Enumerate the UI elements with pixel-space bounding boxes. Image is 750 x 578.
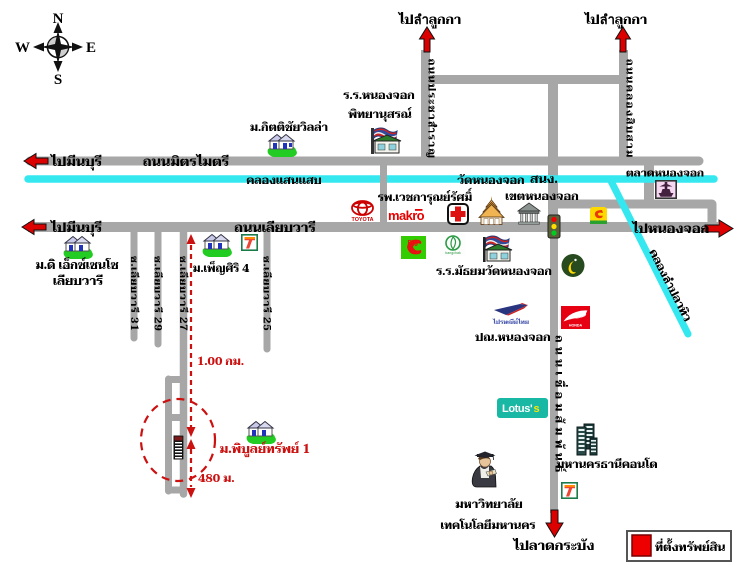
svg-text:E: E — [86, 40, 96, 56]
svg-text:TOYOTA: TOYOTA — [352, 217, 374, 223]
svg-text:ไปรษณีย์ไทย: ไปรษณีย์ไทย — [492, 317, 529, 328]
svg-text:ซ.เลียบวารี 25: ซ.เลียบวารี 25 — [258, 256, 275, 332]
svg-text:ไปหนองจอก: ไปหนองจอก — [631, 218, 710, 241]
svg-text:มหาวิทยาลัย: มหาวิทยาลัย — [455, 495, 523, 515]
svg-text:HONDA: HONDA — [569, 324, 583, 328]
svg-text:ไปมีนบุรี: ไปมีนบุรี — [49, 217, 102, 240]
svg-text:ม.พิบูลย์ทรัพย์ 1: ม.พิบูลย์ทรัพย์ 1 — [220, 438, 311, 460]
svg-text:Big: Big — [408, 240, 419, 247]
svg-text:เทคโนโลยีมหานคร: เทคโนโลยีมหานคร — [440, 517, 535, 536]
svg-text:คลองแสนแสบ: คลองแสนแสบ — [246, 172, 321, 191]
svg-text:ร.ร.หนองจอก: ร.ร.หนองจอก — [343, 86, 415, 106]
svg-text:ไปลาดกระบัง: ไปลาดกระบัง — [512, 535, 595, 558]
svg-text:ซ.เลียบวารี 31: ซ.เลียบวารี 31 — [125, 256, 142, 332]
svg-text:N: N — [53, 11, 64, 27]
svg-text:s: s — [534, 403, 540, 415]
svg-text:ไปลำลูกกา: ไปลำลูกกา — [397, 9, 461, 31]
svg-text:S: S — [54, 72, 62, 88]
svg-text:ซ.เลียบวารี 29: ซ.เลียบวารี 29 — [149, 256, 166, 332]
svg-text:ซ.เลียบวารี 27: ซ.เลียบวารี 27 — [174, 256, 191, 332]
svg-text:ปณ.หนองจอก: ปณ.หนองจอก — [475, 328, 550, 348]
svg-text:bangchak: bangchak — [445, 251, 461, 255]
svg-text:มหานครธานีคอนโด: มหานครธานีคอนโด — [556, 456, 657, 475]
svg-text:ที่ตั้งทรัพย์สิน: ที่ตั้งทรัพย์สิน — [655, 537, 726, 558]
svg-text:เขตหนองจอก: เขตหนองจอก — [505, 187, 579, 207]
svg-text:Lotus': Lotus' — [502, 403, 533, 415]
svg-text:ไปลำลูกกา: ไปลำลูกกา — [583, 9, 647, 31]
svg-text:ไปมีนบุรี: ไปมีนบุรี — [49, 151, 102, 174]
svg-text:รพ.เวชการุณย์รัศมิ์: รพ.เวชการุณย์รัศมิ์ — [378, 186, 473, 207]
svg-text:เลียบวารี: เลียบวารี — [53, 270, 103, 292]
svg-text:W: W — [15, 40, 30, 56]
svg-text:480 ม.: 480 ม. — [198, 470, 234, 489]
svg-text:ตลาดหนองจอก: ตลาดหนองจอก — [626, 164, 704, 183]
svg-text:1.00 กม.: 1.00 กม. — [197, 353, 244, 372]
svg-text:ถนนประชาสำราญ: ถนนประชาสำราญ — [423, 59, 441, 160]
svg-text:ถนนมิตรไมตรี: ถนนมิตรไมตรี — [143, 151, 229, 174]
svg-text:ร.ร.มัธยมวัดหนองจอก: ร.ร.มัธยมวัดหนองจอก — [436, 263, 552, 282]
svg-text:ม.กิตติชัยวิลล่า: ม.กิตติชัยวิลล่า — [250, 119, 328, 138]
svg-text:ถนนคลองสิบสาม: ถนนคลองสิบสาม — [621, 59, 639, 159]
svg-text:พิทยานุสรณ์: พิทยานุสรณ์ — [348, 105, 412, 125]
svg-text:ม.เพ็ญศิริ 4: ม.เพ็ญศิริ 4 — [193, 259, 249, 278]
